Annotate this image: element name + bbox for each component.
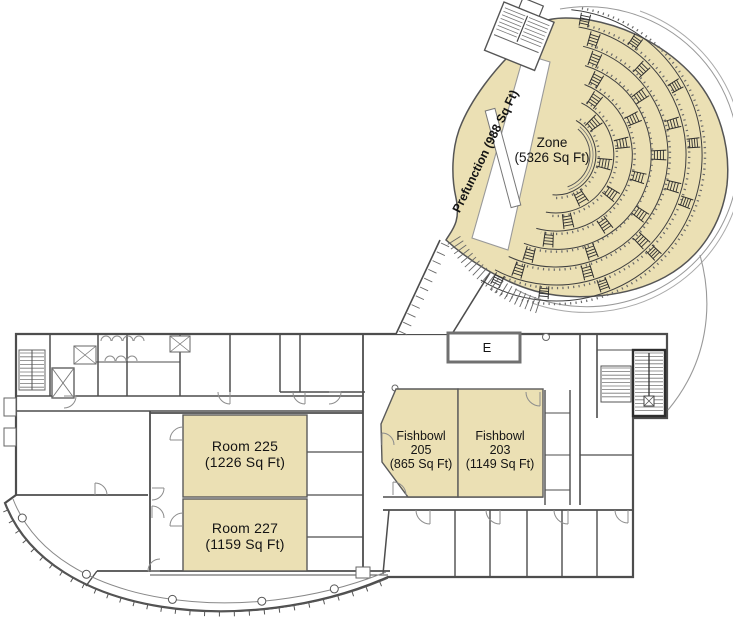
fishbowl-205-number: 205 (411, 443, 432, 457)
room-227-label: Room 227 (212, 520, 278, 536)
floor-plan-page: Zone (5326 Sq Ft) Prefunction (988 Sq Ft… (0, 0, 733, 620)
room-227-area: (1159 Sq Ft) (205, 536, 284, 552)
room-225-label: Room 225 (212, 438, 278, 454)
floor-plan-drawing: Zone (5326 Sq Ft) Prefunction (988 Sq Ft… (0, 0, 733, 620)
zone-label: Zone (537, 135, 568, 150)
plaza-curve (668, 255, 707, 410)
elevator-label: E (483, 340, 492, 355)
fishbowl-203-label: Fishbowl (475, 429, 524, 443)
fishbowl-203-area: (1149 Sq Ft) (466, 457, 535, 471)
fishbowl-205-area: (865 Sq Ft) (390, 457, 453, 471)
zone-area-label: (5326 Sq Ft) (514, 150, 589, 165)
building-outline (5, 334, 667, 611)
room-225-area: (1226 Sq Ft) (205, 454, 285, 470)
fishbowl-203-number: 203 (490, 443, 511, 457)
fishbowl-205-label: Fishbowl (396, 429, 445, 443)
